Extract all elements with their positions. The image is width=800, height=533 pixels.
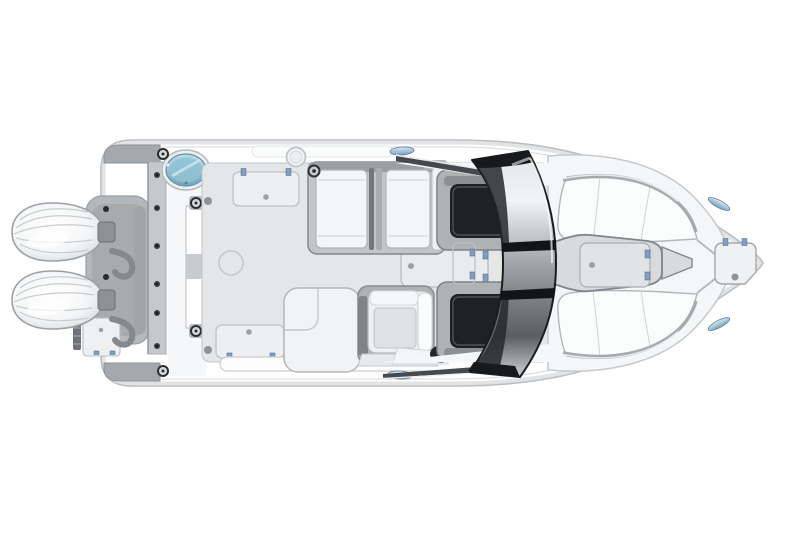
transom-strip — [148, 162, 166, 354]
aft-bench-seat — [308, 160, 447, 254]
cleat-bow-top — [707, 195, 732, 213]
platform-step-hatch — [83, 318, 120, 356]
bow-lounge-bottom — [558, 291, 697, 359]
wet-bar-module — [284, 288, 360, 372]
bench-armrest — [369, 168, 374, 250]
boat-svg — [0, 0, 800, 533]
transom-door — [168, 162, 206, 376]
floor-hatch-aft-bottom — [216, 325, 284, 360]
anchor-locker-hatch — [715, 239, 756, 285]
cleat-bow-bottom — [707, 315, 732, 333]
boat-topview-render — [0, 0, 800, 533]
floor-hatch-aft-top — [233, 169, 299, 207]
gunwale-recess-top — [252, 146, 392, 157]
bow-walkway-hatch — [580, 243, 650, 287]
